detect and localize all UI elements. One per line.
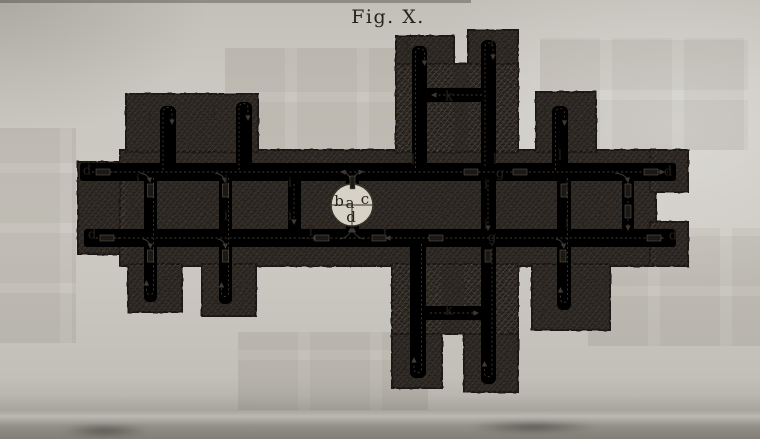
letter-label-l: l [158,284,162,299]
page-bottom-shadow [0,395,760,439]
letter-label-d: d [346,208,356,226]
letter-label-i: i [484,218,488,233]
letter-label-c: c [361,190,369,208]
letter-label-l: l [496,369,500,384]
letter-label-l: l [411,153,415,168]
letter-label-l: l [493,153,497,168]
letter-label-i: i [288,209,292,224]
letter-label-d: d [88,228,96,243]
letter-label-d: d [83,164,91,179]
letter-label-l: l [232,287,236,302]
letter-label-g: g [488,231,496,246]
letter-label-l: l [405,40,409,55]
letter-label-g: g [496,167,504,182]
letter-label-l: l [404,360,408,375]
letter-label-k: k [445,304,453,319]
letter-label-l: l [552,290,556,305]
masonry-mass [78,30,688,392]
letter-label-i: i [224,209,228,224]
letter-label-i: i [484,178,488,193]
letter-label-d: d [664,165,672,180]
letter-label-i: i [565,217,569,232]
letter-label-i: i [136,173,140,188]
letter-label-i: i [136,209,140,224]
letter-label-l: l [490,35,494,50]
letter-label-l: l [148,110,152,125]
letter-label-l: l [543,106,547,121]
letter-label-i: i [288,176,292,191]
letter-label-i: i [224,174,228,189]
flue-plan-figure: bacdddddffggiiiiiiiiiikklllllllllllll Fi… [0,0,760,439]
letter-label-d: d [669,229,677,244]
letter-label-l: l [212,105,216,120]
letter-label-k: k [445,90,453,105]
letter-label-i: i [565,179,569,194]
letter-label-b: b [334,192,344,210]
figure-title: Fig. X. [351,6,425,28]
letter-label-l: l [558,149,562,164]
engraved-plate-page: bacdddddffggiiiiiiiiiikklllllllllllll Fi… [0,0,760,439]
